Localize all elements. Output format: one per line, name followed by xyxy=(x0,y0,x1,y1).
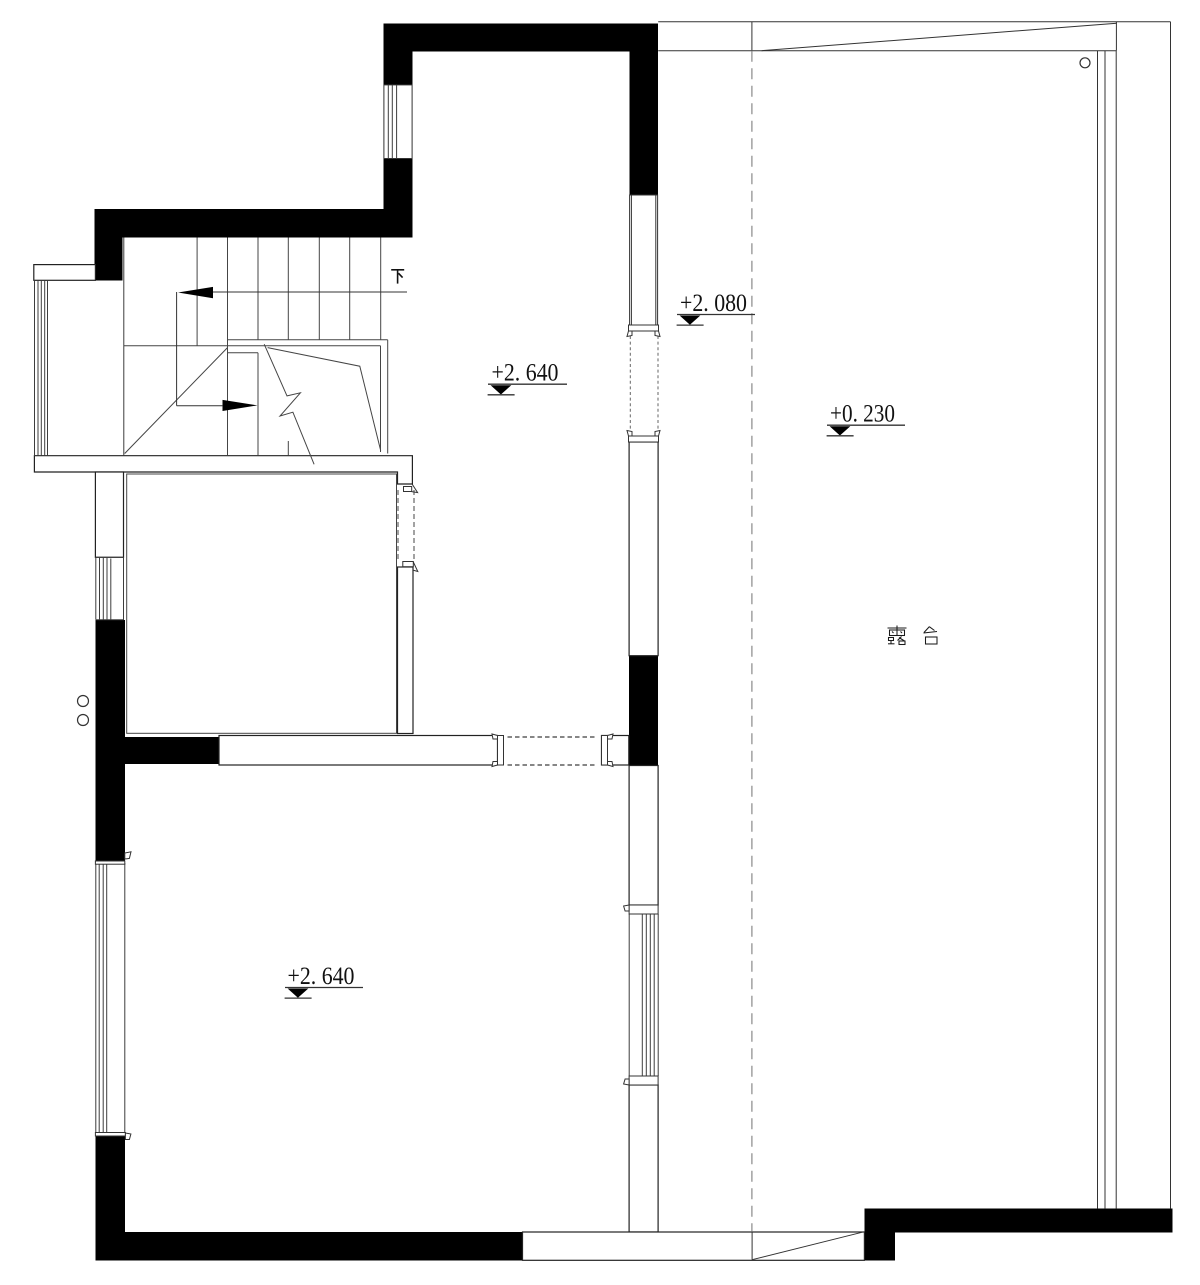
svg-text:+2. 080: +2. 080 xyxy=(680,290,747,317)
svg-text:+0. 230: +0. 230 xyxy=(830,401,895,428)
svg-text:+2. 640: +2. 640 xyxy=(492,360,559,387)
svg-text:+2. 640: +2. 640 xyxy=(288,963,355,990)
